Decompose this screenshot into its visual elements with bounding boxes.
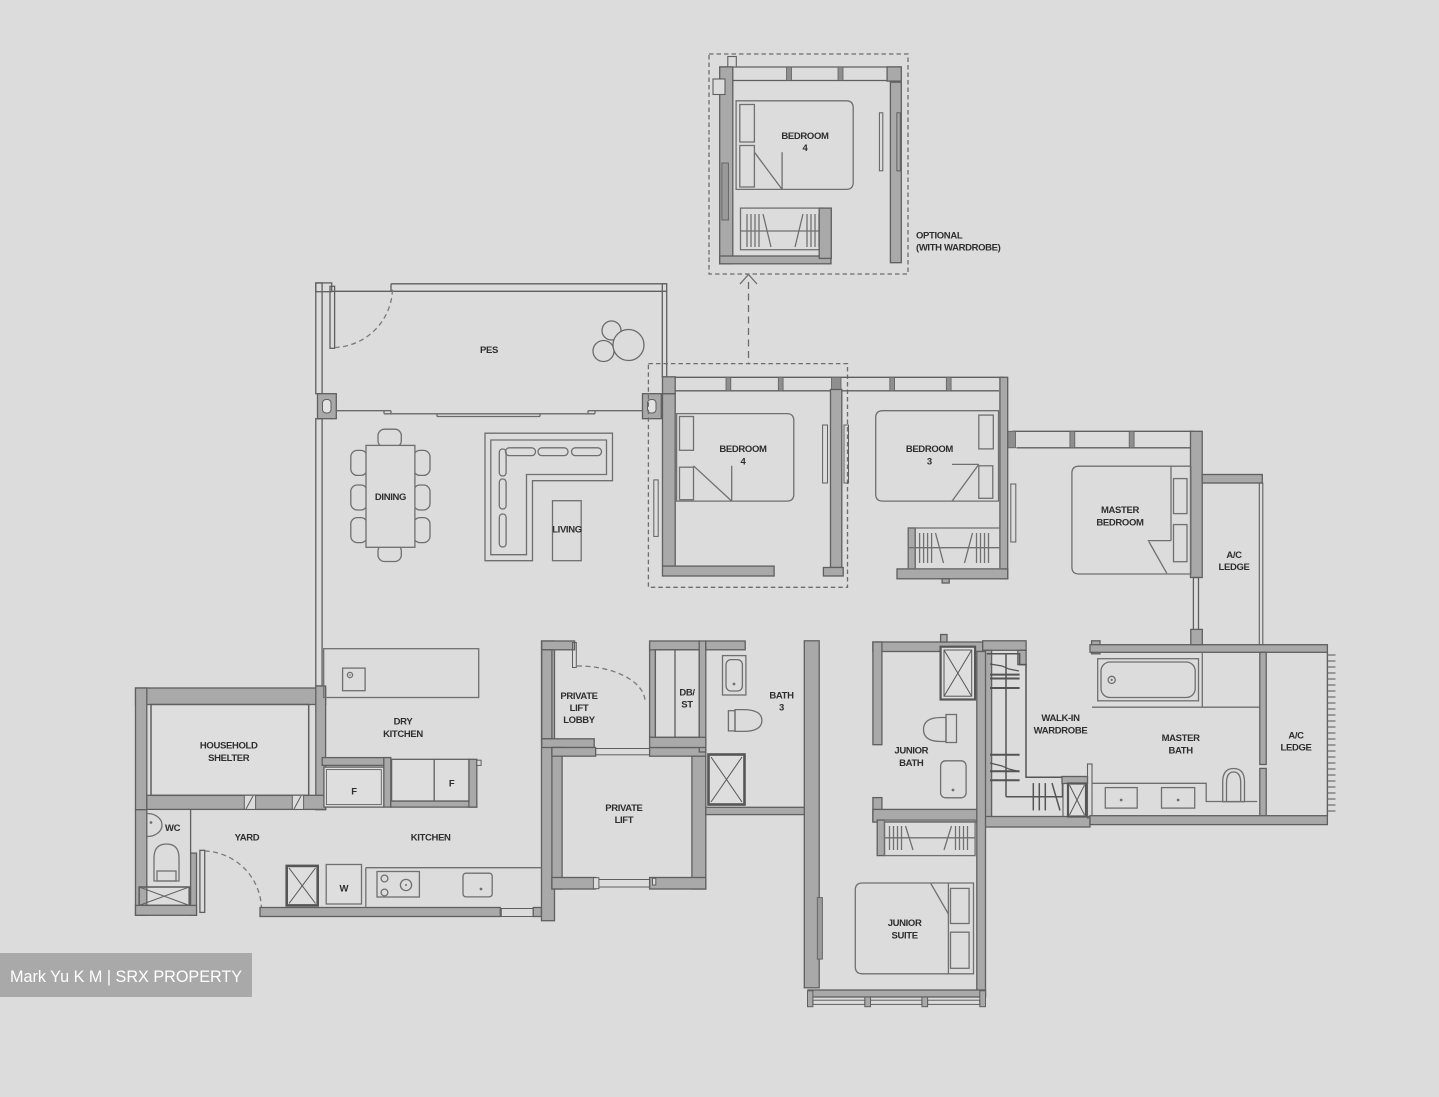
svg-text:WC: WC [165,823,181,834]
svg-text:F: F [351,787,357,798]
svg-text:PRIVATE: PRIVATE [560,691,597,702]
svg-text:Mark Yu K M | SRX PROPERTY: Mark Yu K M | SRX PROPERTY [10,968,242,986]
svg-text:OPTIONAL: OPTIONAL [916,231,963,242]
svg-text:WARDROBE: WARDROBE [1034,726,1088,737]
svg-text:KITCHEN: KITCHEN [383,729,423,740]
svg-text:DB/: DB/ [679,688,695,699]
svg-text:MASTER: MASTER [1162,733,1201,744]
svg-text:BATH: BATH [899,758,924,769]
svg-text:BEDROOM: BEDROOM [781,131,829,142]
svg-text:A/C: A/C [1288,731,1304,742]
svg-text:BEDROOM: BEDROOM [719,444,767,455]
svg-text:BEDROOM: BEDROOM [1096,518,1144,529]
svg-text:3: 3 [927,457,932,468]
svg-text:LIFT: LIFT [615,815,634,826]
svg-text:F: F [449,779,455,790]
svg-text:BATH: BATH [1168,746,1193,757]
svg-text:BEDROOM: BEDROOM [906,444,954,455]
svg-text:W: W [339,884,348,895]
svg-text:BATH: BATH [769,691,794,702]
svg-text:WALK-IN: WALK-IN [1041,713,1080,724]
svg-text:(WITH WARDROBE): (WITH WARDROBE) [916,243,1001,254]
svg-text:SUITE: SUITE [891,931,917,942]
svg-text:YARD: YARD [235,833,260,844]
svg-text:HOUSEHOLD: HOUSEHOLD [200,741,258,752]
svg-text:3: 3 [779,703,784,714]
svg-text:LIFT: LIFT [570,703,589,714]
svg-text:PRIVATE: PRIVATE [605,803,642,814]
svg-text:KITCHEN: KITCHEN [411,833,451,844]
svg-text:4: 4 [803,143,809,154]
svg-text:JUNIOR: JUNIOR [888,918,922,929]
svg-text:4: 4 [741,457,747,468]
svg-text:ST: ST [681,700,693,711]
svg-text:LEDGE: LEDGE [1219,562,1250,573]
svg-text:SHELTER: SHELTER [208,753,250,764]
svg-text:DRY: DRY [394,717,414,728]
svg-text:LIVING: LIVING [552,525,582,536]
svg-text:A/C: A/C [1226,550,1242,561]
svg-text:LEDGE: LEDGE [1281,743,1312,754]
svg-text:DINING: DINING [375,492,406,503]
svg-text:MASTER: MASTER [1101,505,1140,516]
svg-text:JUNIOR: JUNIOR [894,746,928,757]
svg-text:LOBBY: LOBBY [563,715,596,726]
svg-text:PES: PES [480,345,498,356]
